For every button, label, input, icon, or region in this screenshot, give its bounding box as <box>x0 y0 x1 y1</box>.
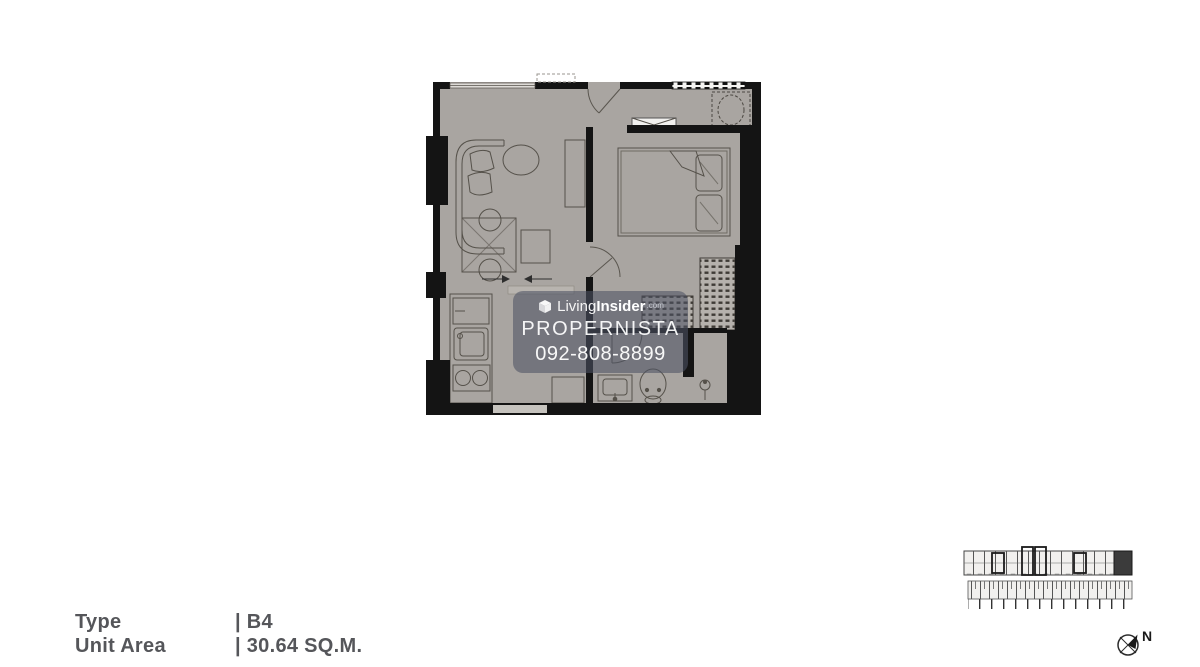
building-key-plan <box>962 541 1148 613</box>
watermark-agency: PROPERNISTA <box>521 317 679 342</box>
unit-area-label: Unit Area <box>75 634 235 658</box>
keyplan-unit-highlight <box>1114 551 1132 575</box>
brand-living: Living <box>557 298 596 316</box>
type-label: Type <box>75 610 235 634</box>
compass-north-label: N <box>1142 628 1152 644</box>
watermark-overlay: LivingInsider.com PROPERNISTA 092-808-88… <box>513 291 688 373</box>
keyplan-lower-wing <box>968 581 1132 609</box>
keyplan-upper-wing <box>964 547 1132 575</box>
north-compass-icon: N <box>1106 624 1170 662</box>
unit-area-value: | 30.64 SQ.M. <box>235 634 362 658</box>
brand-suffix: .com <box>647 297 664 317</box>
livinginsider-cube-icon <box>537 299 553 315</box>
bottom-window-icon <box>493 405 547 413</box>
planter-ledge-icon <box>537 74 575 82</box>
brand-insider: Insider <box>596 298 645 316</box>
legend-row-unit-area: Unit Area | 30.64 SQ.M. <box>75 634 362 658</box>
unit-legend: Type | B4 Unit Area | 30.64 SQ.M. <box>75 610 362 658</box>
type-value: | B4 <box>235 610 273 634</box>
livinginsider-logo: LivingInsider.com <box>537 297 664 317</box>
watermark-phone: 092-808-8899 <box>535 342 666 367</box>
legend-row-type: Type | B4 <box>75 610 362 634</box>
